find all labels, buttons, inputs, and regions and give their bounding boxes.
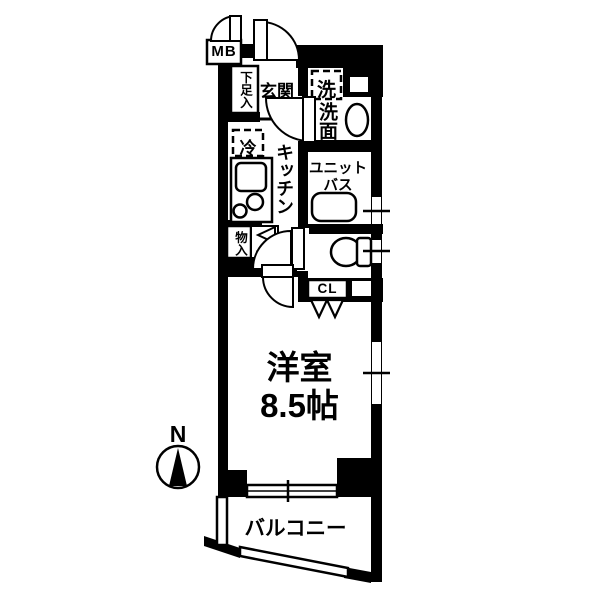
closet-folding-door-right	[327, 300, 343, 317]
storage-label: 物入	[228, 230, 251, 256]
room-door-leaf	[262, 265, 293, 277]
closet-label: CL	[308, 281, 347, 296]
balcony-railing-bottom	[240, 547, 348, 577]
washroom-label: 洗面	[314, 99, 339, 143]
stove-burner-large	[247, 194, 263, 210]
washroom-high-window	[350, 77, 368, 92]
room-door-arc	[263, 277, 293, 307]
room-name: 洋室	[267, 349, 333, 386]
closet-folding-door-left	[311, 300, 327, 317]
stove-burner-small	[234, 205, 247, 218]
kitchen-sink	[236, 163, 266, 191]
room-size: 8.5帖	[260, 387, 339, 424]
wall-bath-toilet	[298, 224, 383, 234]
entrance-door-leaf	[254, 20, 267, 60]
balcony-label: バルコニー	[228, 511, 363, 541]
closet-side-niche	[352, 281, 371, 296]
balcony-railing-left	[217, 497, 227, 545]
wash-basin	[346, 104, 368, 136]
shoe-storage-label: 下足入	[233, 68, 257, 112]
unit-bath-label-line2: バス	[324, 178, 353, 194]
toilet-door-leaf	[292, 228, 304, 269]
wall-room-balcony-corner	[337, 458, 371, 497]
wall-right	[371, 45, 382, 582]
mb-door-leaf	[230, 16, 241, 41]
bathtub	[312, 193, 356, 221]
room-label: 洋室 8.5帖	[228, 349, 371, 426]
kitchen-label: キッチン	[272, 137, 295, 221]
entrance-label: 玄関	[256, 77, 298, 102]
wall-left	[218, 64, 228, 497]
compass-north-label: N	[160, 421, 196, 448]
unit-bath-label: ユニット バス	[306, 161, 370, 196]
wall-room-bottom-step	[228, 470, 247, 497]
wall-entrance-washroom	[298, 45, 308, 96]
fridge-label: 冷	[233, 134, 263, 159]
floor-plan: MB 下足入 玄関 洗 洗面 冷 キッチン ユニット バス 物入 CL 洋室 8…	[0, 0, 600, 600]
floor-plan-drawing	[0, 0, 600, 600]
meter-box-label: MB	[207, 43, 241, 60]
unit-bath-label-line1: ユニット	[309, 161, 367, 177]
washer-label: 洗	[312, 75, 341, 102]
